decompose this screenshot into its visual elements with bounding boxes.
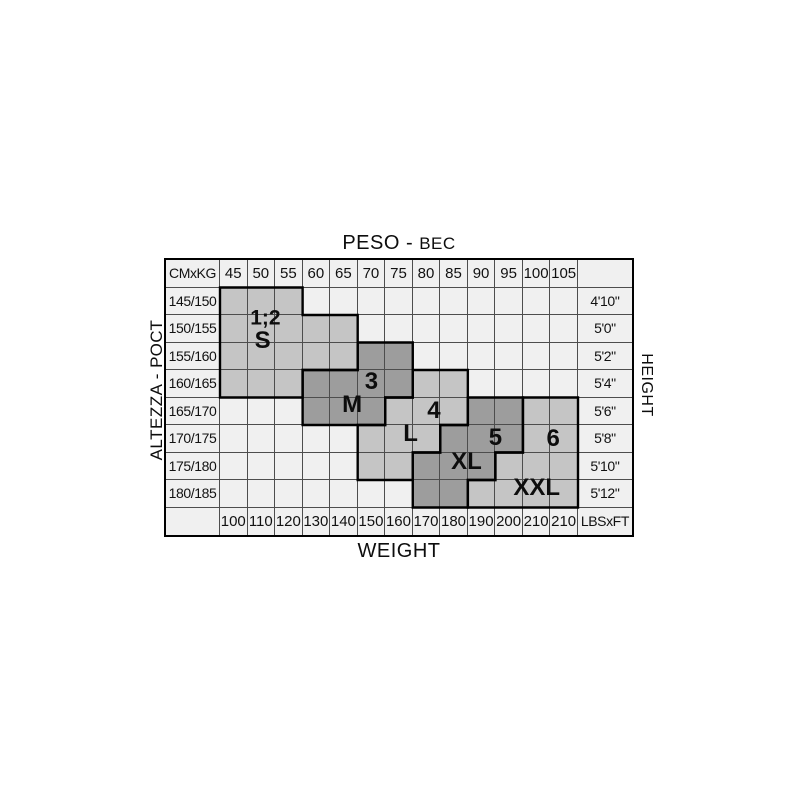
corner-cmxkg-cell: CMxKG [166, 260, 220, 288]
kg-header-cell: 65 [330, 260, 358, 288]
size-grid-cell [440, 370, 468, 398]
size-grid-cell [523, 288, 551, 316]
size-grid-cell [275, 315, 303, 343]
cm-label-cell: 155/160 [166, 343, 220, 371]
kg-header-cell: 45 [220, 260, 248, 288]
size-grid-cell [330, 480, 358, 508]
size-grid-cell [495, 453, 523, 481]
ft-label-cell: 5'10" [578, 453, 632, 481]
size-grid-cell [440, 453, 468, 481]
ft-label-cell: 5'12" [578, 480, 632, 508]
size-grid-cell [468, 315, 496, 343]
ft-label-cell: 5'6" [578, 398, 632, 426]
size-grid-cell [330, 425, 358, 453]
size-grid-cell [330, 370, 358, 398]
kg-header-cell: 85 [440, 260, 468, 288]
size-grid-cell [358, 480, 386, 508]
size-grid-cell [220, 480, 248, 508]
cm-label-cell: 180/185 [166, 480, 220, 508]
size-grid-cell [413, 315, 441, 343]
size-grid-cell [220, 288, 248, 316]
size-grid-cell [468, 370, 496, 398]
chart-title-peso: PESO - ВЕС [164, 233, 634, 254]
size-grid-cell [413, 370, 441, 398]
size-grid-cell [550, 453, 578, 481]
cm-label-cell: 160/165 [166, 370, 220, 398]
lbs-footer-cell: 160 [385, 508, 413, 536]
size-grid-cell [495, 480, 523, 508]
size-grid-cell [550, 315, 578, 343]
size-grid-cell [440, 343, 468, 371]
ft-label-cell: 4'10" [578, 288, 632, 316]
size-grid-cell [303, 343, 331, 371]
size-grid-cell [550, 370, 578, 398]
chart-title-height: HEIGHT [637, 353, 655, 416]
size-grid-cell [468, 425, 496, 453]
size-grid-cell [358, 288, 386, 316]
lbs-footer-cell: 110 [248, 508, 276, 536]
size-grid-cell [385, 425, 413, 453]
size-grid-cell [248, 398, 276, 426]
cm-label-cell: 175/180 [166, 453, 220, 481]
size-grid-cell [468, 453, 496, 481]
size-grid-cell [358, 370, 386, 398]
size-grid-cell [248, 370, 276, 398]
size-grid-cell [440, 315, 468, 343]
size-grid-cell [358, 315, 386, 343]
size-grid-cell [248, 453, 276, 481]
size-grid-cell [330, 315, 358, 343]
size-grid-cell [385, 453, 413, 481]
size-grid-cell [220, 315, 248, 343]
kg-header-cell: 55 [275, 260, 303, 288]
kg-header-cell: 60 [303, 260, 331, 288]
kg-header-cell: 75 [385, 260, 413, 288]
ft-label-cell: 5'2" [578, 343, 632, 371]
ft-label-cell: 5'8" [578, 425, 632, 453]
size-grid-cell [385, 343, 413, 371]
size-grid-cell [385, 315, 413, 343]
size-grid-cell [330, 398, 358, 426]
size-grid-cell [468, 343, 496, 371]
size-grid-cell [275, 480, 303, 508]
size-chart-grid: CMxKG4550556065707580859095100105145/150… [166, 260, 632, 535]
size-grid-cell [440, 480, 468, 508]
size-grid-cell [358, 398, 386, 426]
size-grid-cell [440, 288, 468, 316]
size-grid-cell [440, 398, 468, 426]
lbs-footer-cell: 150 [358, 508, 386, 536]
size-grid-cell [523, 370, 551, 398]
lbs-footer-cell: 180 [440, 508, 468, 536]
ft-label-cell: 5'4" [578, 370, 632, 398]
kg-header-cell: 95 [495, 260, 523, 288]
size-grid-cell [495, 288, 523, 316]
size-grid-cell [523, 425, 551, 453]
cm-label-cell: 170/175 [166, 425, 220, 453]
size-grid-cell [495, 425, 523, 453]
size-grid-cell [495, 315, 523, 343]
size-grid-cell [330, 453, 358, 481]
page-background: PESO - ВЕС ALTEZZA - РОСТ CMxKG455055606… [0, 0, 800, 800]
size-grid-cell [495, 370, 523, 398]
lbs-footer-cell: 200 [495, 508, 523, 536]
size-grid-cell [220, 398, 248, 426]
size-grid-cell [385, 370, 413, 398]
size-grid-cell [550, 425, 578, 453]
size-grid-cell [523, 315, 551, 343]
size-grid-cell [413, 398, 441, 426]
size-grid-cell [358, 425, 386, 453]
size-grid-cell [468, 288, 496, 316]
cm-label-cell: 145/150 [166, 288, 220, 316]
size-grid-cell [413, 480, 441, 508]
lbs-footer-cell: 210 [550, 508, 578, 536]
size-grid-cell [303, 288, 331, 316]
size-grid-cell [220, 343, 248, 371]
size-grid-cell [495, 343, 523, 371]
size-grid-cell [413, 453, 441, 481]
size-grid-cell [220, 453, 248, 481]
size-grid-cell [275, 370, 303, 398]
size-grid-cell [248, 425, 276, 453]
kg-header-cell: 105 [550, 260, 578, 288]
size-grid-cell [358, 343, 386, 371]
size-grid-cell [303, 453, 331, 481]
size-grid-cell [385, 288, 413, 316]
size-grid-cell [303, 370, 331, 398]
size-grid-cell [303, 480, 331, 508]
size-grid-cell [220, 370, 248, 398]
ft-label-cell: 5'0" [578, 315, 632, 343]
size-grid-cell [275, 288, 303, 316]
title-ves-text: ВЕС [419, 234, 455, 253]
size-grid-cell [440, 425, 468, 453]
title-peso-text: PESO - [342, 232, 419, 254]
size-grid-cell [358, 453, 386, 481]
size-grid-cell [248, 343, 276, 371]
size-grid-cell [495, 398, 523, 426]
size-grid-cell [248, 480, 276, 508]
size-grid-cell [385, 480, 413, 508]
size-grid-cell [303, 315, 331, 343]
size-grid-cell [330, 343, 358, 371]
chart-title-weight: WEIGHT [164, 541, 634, 561]
cm-label-cell: 150/155 [166, 315, 220, 343]
size-grid-cell [468, 480, 496, 508]
corner-empty-cell [166, 508, 220, 536]
size-grid-cell [330, 288, 358, 316]
size-grid-cell [275, 425, 303, 453]
kg-header-cell: 100 [523, 260, 551, 288]
size-grid-cell [248, 315, 276, 343]
size-grid-cell [275, 398, 303, 426]
size-grid-cell [303, 425, 331, 453]
lbs-footer-cell: 120 [275, 508, 303, 536]
size-grid-cell [275, 343, 303, 371]
lbs-footer-cell: 170 [413, 508, 441, 536]
size-grid-cell [523, 480, 551, 508]
size-grid-cell [413, 343, 441, 371]
size-grid-cell [550, 288, 578, 316]
size-grid-cell [523, 398, 551, 426]
size-grid-cell [523, 453, 551, 481]
lbs-footer-cell: 210 [523, 508, 551, 536]
lbs-footer-cell: 130 [303, 508, 331, 536]
kg-header-cell: 70 [358, 260, 386, 288]
size-grid-cell [523, 343, 551, 371]
size-grid-cell [550, 398, 578, 426]
lbs-footer-cell: 100 [220, 508, 248, 536]
lbs-footer-cell: 190 [468, 508, 496, 536]
size-grid-cell [550, 343, 578, 371]
size-grid-cell [220, 425, 248, 453]
cm-label-cell: 165/170 [166, 398, 220, 426]
size-grid-cell [468, 398, 496, 426]
size-grid-cell [550, 480, 578, 508]
lbs-footer-cell: 140 [330, 508, 358, 536]
size-grid-cell [413, 425, 441, 453]
size-chart-table: CMxKG4550556065707580859095100105145/150… [164, 258, 634, 537]
kg-header-cell: 90 [468, 260, 496, 288]
corner-empty-cell [578, 260, 632, 288]
kg-header-cell: 50 [248, 260, 276, 288]
size-grid-cell [385, 398, 413, 426]
kg-header-cell: 80 [413, 260, 441, 288]
size-grid-cell [413, 288, 441, 316]
size-grid-cell [275, 453, 303, 481]
size-grid-cell [303, 398, 331, 426]
size-grid-cell [248, 288, 276, 316]
corner-lbsxft-cell: LBSxFT [578, 508, 632, 536]
